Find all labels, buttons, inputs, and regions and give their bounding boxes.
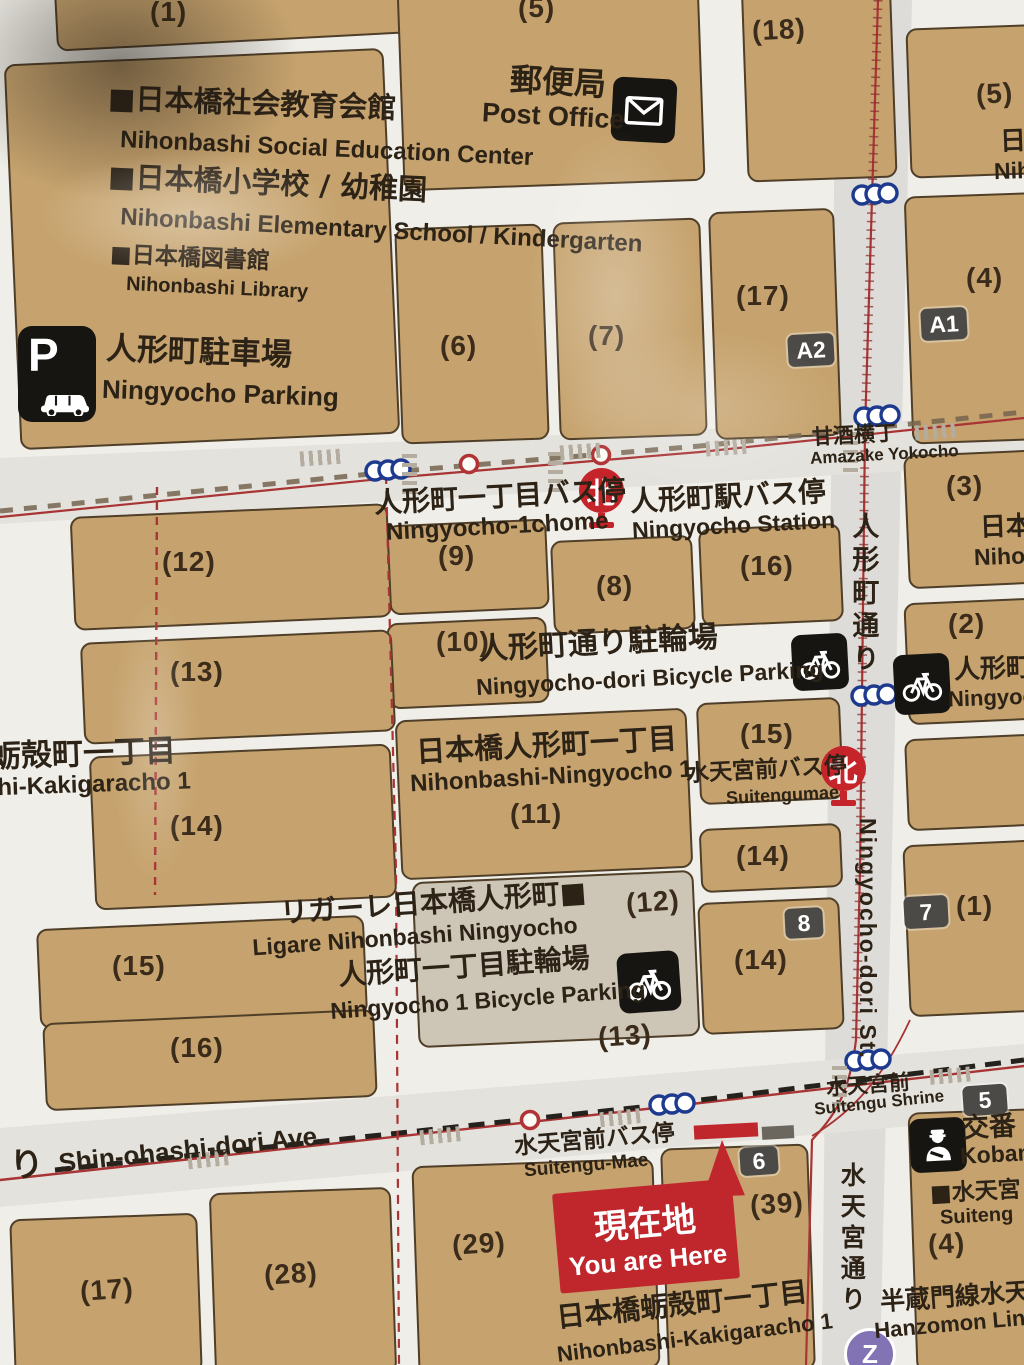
city-block (80, 629, 396, 745)
block-number: (1) (150, 0, 187, 28)
block-number: (12) (625, 884, 681, 920)
cut-label-nihon-en: Nihon (974, 543, 1024, 569)
block-number: (39) (749, 1186, 805, 1222)
suitengu-cut-jp: ■水天宮 (929, 1178, 1021, 1207)
city-block (708, 208, 842, 440)
exit-badge-a1: A1 (920, 307, 968, 341)
block-number: (15) (112, 950, 166, 982)
parking-icon: P (18, 326, 96, 422)
ningyocho-dori-name-jp: 人形町通り (848, 512, 876, 742)
exit-badge-6: 6 (739, 1146, 779, 1177)
cut-label-r5-en: Nihon (994, 157, 1024, 183)
you-are-here-jp: 現在地 (592, 1192, 698, 1250)
koban-jp: 交番 (961, 1113, 1016, 1144)
block-number: (13) (170, 656, 224, 688)
block-number: (11) (510, 798, 562, 830)
block-number: (28) (263, 1256, 319, 1292)
marker-accessory (762, 1125, 795, 1140)
block-number: (17) (79, 1272, 135, 1308)
crosswalk (300, 448, 345, 466)
block-number: (16) (740, 550, 794, 582)
car-icon (37, 386, 93, 416)
block-number: (8) (596, 570, 633, 602)
block-number: (2) (948, 608, 985, 640)
block-number: (1) (956, 890, 993, 922)
crosswalk (560, 442, 605, 460)
exit-badge-a2: A2 (787, 333, 835, 367)
you-are-here-en: You are Here (568, 1238, 729, 1283)
crosswalk (706, 438, 751, 456)
block-number: (7) (588, 320, 625, 352)
block-number: (6) (440, 330, 477, 362)
bicycle-parking-icon (892, 653, 951, 716)
block-number: (14) (734, 944, 788, 976)
parking-p-letter: P (28, 328, 59, 382)
block-number: (3) (946, 470, 983, 502)
cut-label-nihon-jp: 日本 (980, 513, 1024, 542)
block-number: (16) (170, 1032, 224, 1064)
block-number: (17) (736, 280, 790, 312)
post-office-label-jp: 郵便局 (509, 64, 607, 103)
you-are-here-marker: 現在地 You are Here (552, 1178, 740, 1293)
crosswalk (915, 422, 960, 440)
cut-label-bike3-jp: 人形町 (954, 655, 1024, 685)
block-number: (12) (162, 546, 216, 578)
cut-label-bike3-en: Ningyoc (948, 684, 1024, 710)
exit-badge-8: 8 (784, 907, 824, 939)
block-number: (5) (518, 0, 555, 24)
kita-stem (840, 791, 847, 800)
suitengu-cut-en: Suiteng (940, 1204, 1014, 1229)
block-number: (13) (597, 1018, 653, 1054)
city-block (70, 503, 393, 631)
area-guide-map: (1) (5) (18) (5) (6) (7) (17) (4) (3) (1… (0, 0, 1024, 1365)
block-number: (15) (740, 718, 794, 750)
ningyocho-dori-name-en: Ningyocho-dori St. (856, 818, 880, 1073)
exit-badge-7: 7 (903, 895, 949, 929)
cut-label-r5-jp: 日本 (1000, 127, 1024, 156)
block-number: (14) (170, 810, 224, 842)
suitengu-dori-name-jp: 水天宮通り (838, 1162, 864, 1342)
city-block (904, 733, 1024, 831)
block-number: (4) (966, 262, 1003, 294)
block-number: (5) (975, 77, 1014, 111)
block-number: (9) (438, 540, 475, 572)
block-number: (29) (451, 1226, 507, 1262)
ningyocho-parking-jp: 人形町駐車場 (105, 333, 292, 372)
block-number: (18) (751, 13, 806, 48)
block-number: (14) (736, 840, 790, 872)
shin-ohashi-jp-cut: り (8, 1146, 46, 1185)
block-number: (4) (927, 1227, 966, 1261)
koban-en: Koban (959, 1140, 1024, 1168)
